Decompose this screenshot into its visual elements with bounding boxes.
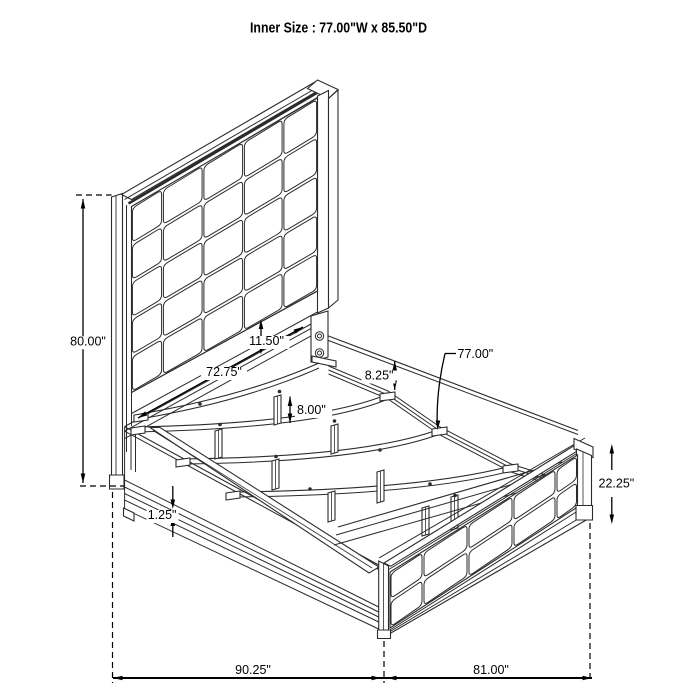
svg-text:90.25": 90.25" (235, 663, 271, 677)
svg-text:1.25": 1.25" (148, 508, 177, 522)
svg-text:77.00": 77.00" (458, 347, 494, 361)
svg-text:8.25": 8.25" (365, 369, 394, 383)
svg-text:72.75": 72.75" (206, 365, 242, 379)
svg-text:22.25": 22.25" (599, 477, 635, 491)
svg-text:80.00": 80.00" (70, 334, 106, 348)
svg-text:81.00": 81.00" (473, 663, 509, 677)
svg-text:11.50": 11.50" (249, 334, 284, 348)
svg-text:Inner Size : 77.00"W x 85.50"D: Inner Size : 77.00"W x 85.50"D (250, 20, 427, 37)
svg-text:8.00": 8.00" (297, 403, 326, 417)
